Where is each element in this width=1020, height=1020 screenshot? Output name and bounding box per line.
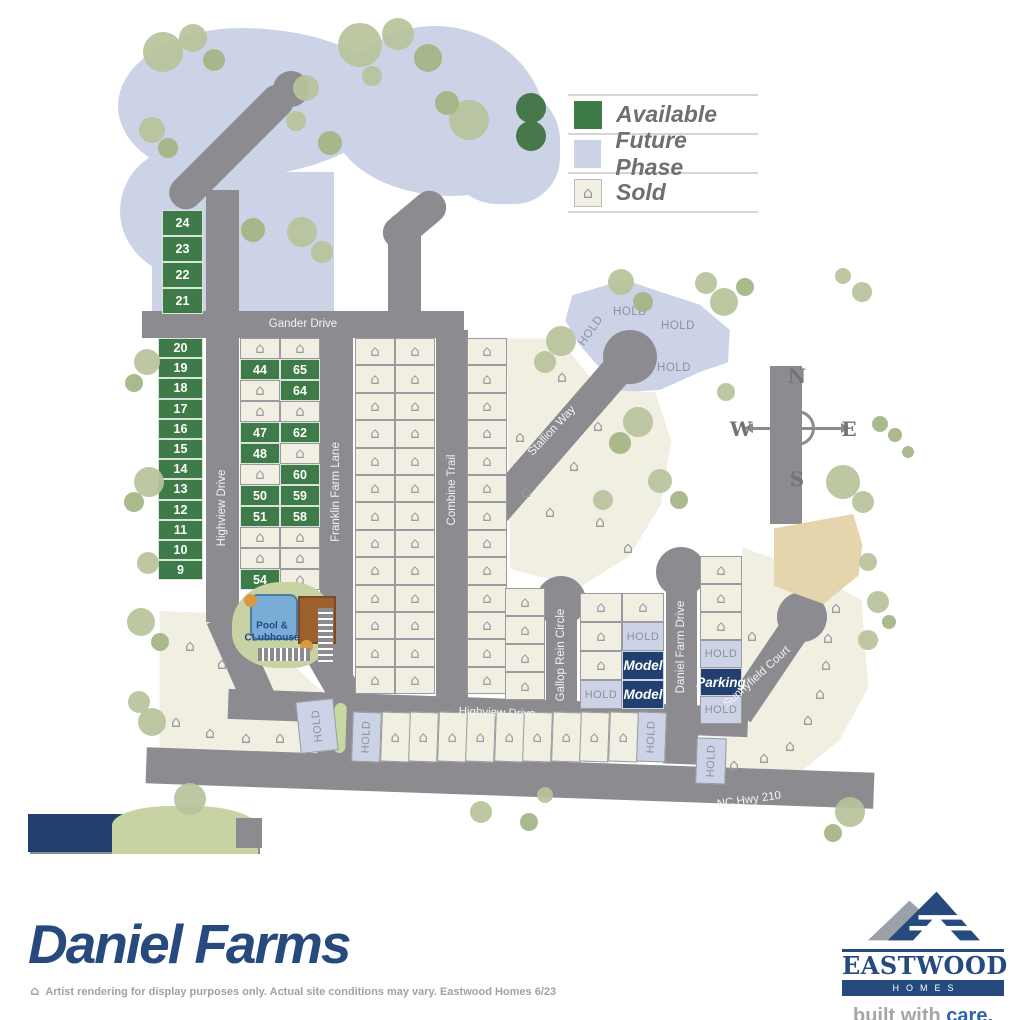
tree [134, 349, 160, 375]
house-icon: ⌂ [504, 729, 514, 744]
lot-available-17: 17 [158, 399, 203, 419]
house-icon: ⌂ [255, 383, 265, 398]
lot-available-64: 64 [280, 380, 320, 401]
hold-label: HOLD [360, 721, 373, 754]
lot-sold: ⌂ [355, 338, 395, 365]
tree [138, 708, 166, 736]
lot-sold: ⌂ [240, 464, 280, 485]
lot-number: 14 [174, 462, 188, 476]
lot-available-19: 19 [158, 358, 203, 378]
compass-south: S [790, 467, 804, 491]
lot-sold: ⌂ [608, 712, 638, 763]
lot-number: 11 [174, 523, 187, 537]
house-icon: ⌂ [255, 341, 265, 356]
tree [293, 75, 319, 101]
lot-sold: ⌂ [395, 393, 435, 420]
hold-label: HOLD [704, 745, 717, 778]
lot-number: 44 [253, 363, 267, 377]
tree [338, 23, 382, 67]
lot-sold: ⌂ [505, 588, 545, 616]
legend: Available Future Phase ⌂ Sold [568, 94, 758, 213]
tree [835, 268, 851, 284]
lot-available-48: 48 [240, 443, 280, 464]
lot-sold: ⌂ [280, 548, 320, 569]
house-icon: ⌂ [447, 729, 457, 744]
lot-sold: ⌂ [240, 338, 280, 359]
tree [158, 138, 178, 158]
lot-sold: ⌂ [395, 420, 435, 447]
house-icon: ⌂ [831, 600, 841, 616]
house-icon: ⌂ [785, 738, 795, 754]
tree [872, 416, 888, 432]
lot-number: 51 [253, 510, 267, 524]
tree [633, 292, 653, 312]
lot-number: 23 [176, 242, 190, 256]
lot-sold: ⌂ [700, 584, 742, 612]
lot-available-10: 10 [158, 540, 203, 560]
lot-number: 62 [293, 426, 307, 440]
logo-homes-bar: HOMES [842, 980, 1004, 996]
tree [151, 633, 169, 651]
tree [835, 797, 865, 827]
house-icon: ⌂ [623, 540, 633, 556]
lot-available-11: 11 [158, 520, 203, 540]
street-label: Gander Drive [269, 318, 337, 330]
house-icon: ⌂ [482, 454, 492, 469]
tree [179, 24, 207, 52]
house-icon: ⌂ [595, 514, 605, 530]
lot-available-16: 16 [158, 419, 203, 439]
house-icon: ⌂ [410, 399, 420, 414]
compass-east: E [841, 417, 856, 441]
lot-sold: ⌂ [395, 502, 435, 529]
house-icon: ⌂ [185, 638, 195, 654]
lot-hold: HOLD [695, 737, 727, 784]
lot-sold: ⌂ [280, 527, 320, 548]
lot-number: 50 [253, 489, 267, 503]
lot-available-12: 12 [158, 500, 203, 520]
lot-number: 59 [293, 489, 307, 503]
lot-sold: ⌂ [380, 712, 410, 763]
house-icon: ⌂ [716, 619, 726, 634]
lot-sold: ⌂ [408, 712, 438, 763]
house-icon: ⌂ [295, 551, 305, 566]
house-icon: ⌂ [482, 509, 492, 524]
lot-sold: ⌂ [240, 380, 280, 401]
tree [125, 374, 143, 392]
house-icon: ⌂ [716, 563, 726, 578]
tree [520, 813, 538, 831]
house-icon: ⌂ [410, 673, 420, 688]
house-icon: ⌂ [410, 591, 420, 606]
house-icon: ⌂ [618, 729, 628, 744]
lot-available-13: 13 [158, 479, 203, 499]
culdesac [656, 547, 706, 597]
map-open-space [774, 514, 866, 604]
lot-sold: ⌂ [280, 401, 320, 422]
lot-hold: HOLD [622, 622, 664, 651]
house-icon: ⌂ [370, 399, 380, 414]
tree [710, 288, 738, 316]
house-icon: ⌂ [410, 646, 420, 661]
house-icon: ⌂ [482, 591, 492, 606]
compass-west: W [730, 417, 752, 441]
house-icon: ⌂ [370, 536, 380, 551]
model-label: Model [624, 687, 663, 702]
lot-number: 16 [174, 422, 188, 436]
lot-sold: ⌂ [355, 530, 395, 557]
house-icon: ⌂ [410, 372, 420, 387]
lot-hold: HOLD [295, 698, 338, 754]
house-icon: ⌂ [557, 369, 567, 385]
hold-label: HOLD [309, 709, 324, 743]
house-icon: ⌂ [255, 551, 265, 566]
lot-model: Model [622, 651, 664, 680]
house-icon: ⌂ [815, 686, 825, 702]
house-icon: ⌂ [295, 404, 305, 419]
house-icon: ⌂ [255, 404, 265, 419]
house-icon: ⌂ [482, 646, 492, 661]
tree [127, 608, 155, 636]
lot-sold: ⌂ [395, 557, 435, 584]
lot-sold: ⌂ [505, 616, 545, 644]
lot-sold: ⌂ [395, 338, 435, 365]
lot-available-20: 20 [158, 338, 203, 358]
house-icon: ⌂ [275, 730, 285, 746]
lot-number: 65 [293, 363, 307, 377]
lot-sold: ⌂ [355, 393, 395, 420]
lot-number: 60 [293, 468, 307, 482]
lot-sold: ⌂ [355, 502, 395, 529]
house-icon: ⌂ [370, 673, 380, 688]
lot-number: 22 [176, 268, 190, 282]
lot-hold: HOLD [580, 680, 622, 709]
house-icon: ⌂ [370, 454, 380, 469]
tree [286, 111, 306, 131]
house-icon: ⌂ [410, 426, 420, 441]
lot-sold: ⌂ [395, 585, 435, 612]
lot-sold: ⌂ [355, 639, 395, 666]
lot-available-50: 50 [240, 485, 280, 506]
house-icon: ⌂ [370, 481, 380, 496]
lot-sold: ⌂ [580, 651, 622, 680]
lot-available-24: 24 [162, 210, 203, 236]
hold-label: HOLD [661, 320, 695, 332]
house-icon: ⌂ [241, 730, 251, 746]
tree [593, 490, 613, 510]
house-icon: ⌂ [482, 372, 492, 387]
house-icon: ⌂ [596, 600, 606, 615]
lot-sold: ⌂ [505, 644, 545, 672]
house-icon: ⌂ [596, 629, 606, 644]
road [206, 190, 239, 622]
lot-hold: HOLD [700, 640, 742, 668]
tree [534, 351, 556, 373]
tree [318, 131, 342, 155]
hold-label: HOLD [585, 689, 618, 701]
house-icon: ⌂ [295, 530, 305, 545]
lot-number: 64 [293, 384, 307, 398]
lot-sold: ⌂ [240, 527, 280, 548]
house-icon: ⌂ [589, 729, 599, 744]
lot-available-9: 9 [158, 560, 203, 580]
tagline-built-with: built with [853, 1005, 946, 1020]
lot-model: Model [622, 680, 664, 709]
compass-circle [779, 410, 815, 446]
legend-item-future-phase: Future Phase [568, 133, 758, 172]
tree [858, 630, 878, 650]
street-label: Combine Trail [446, 455, 458, 526]
house-icon: ⌂ [482, 673, 492, 688]
lot-sold: ⌂ [395, 448, 435, 475]
house-icon: ⌂ [803, 712, 813, 728]
lot-sold: ⌂ [467, 612, 507, 639]
house-icon: ⌂ [593, 418, 603, 434]
site-map-page: Pool & CLubhouse 24232221201918171615141… [0, 0, 1020, 1020]
lot-available-44: 44 [240, 359, 280, 380]
house-icon: ⌂ [482, 618, 492, 633]
future-phase-swatch [574, 140, 601, 168]
tree [435, 91, 459, 115]
lot-available-14: 14 [158, 459, 203, 479]
house-icon: ⌂ [520, 679, 530, 694]
tree [537, 787, 553, 803]
lot-number: 12 [174, 503, 188, 517]
lot-sold: ⌂ [551, 712, 581, 763]
lot-sold: ⌂ [355, 612, 395, 639]
hold-label: HOLD [705, 648, 738, 660]
lot-available-22: 22 [162, 262, 203, 288]
house-icon: ⌂ [295, 341, 305, 356]
lot-sold: ⌂ [467, 365, 507, 392]
map-road-stub [236, 818, 262, 848]
lot-number: 47 [253, 426, 267, 440]
lot-sold: ⌂ [240, 548, 280, 569]
lot-available-65: 65 [280, 359, 320, 380]
house-icon: ⌂ [545, 504, 555, 520]
house-icon: ⌂ [410, 563, 420, 578]
house-icon: ⌂ [370, 509, 380, 524]
lot-hold: HOLD [351, 712, 381, 763]
house-icon: ⌂ [823, 630, 833, 646]
house-icon: ⌂ [370, 426, 380, 441]
lot-number: 9 [177, 563, 184, 577]
lot-available-58: 58 [280, 506, 320, 527]
street-label: Gallop Rein Circle [555, 609, 567, 702]
hold-label: HOLD [657, 362, 691, 374]
tree [824, 824, 842, 842]
hold-label: HOLD [627, 631, 660, 643]
tree [362, 66, 382, 86]
house-icon: ⌂ [482, 344, 492, 359]
lot-sold: ⌂ [580, 622, 622, 651]
tree [241, 218, 265, 242]
community-site-map: Pool & CLubhouse 24232221201918171615141… [0, 0, 1020, 1020]
tree [137, 552, 159, 574]
house-icon: ⌂ [729, 757, 739, 773]
lot-sold: ⌂ [467, 393, 507, 420]
house-icon: ⌂ [370, 563, 380, 578]
lot-available-47: 47 [240, 422, 280, 443]
tree [516, 121, 546, 151]
house-icon: ⌂ [482, 536, 492, 551]
model-label: Model [624, 658, 663, 673]
tree [203, 49, 225, 71]
tree [174, 783, 206, 815]
lot-sold: ⌂ [355, 420, 395, 447]
lot-sold: ⌂ [395, 667, 435, 694]
lot-number: 58 [293, 510, 307, 524]
house-icon: ⌂ [410, 344, 420, 359]
parking-spaces [318, 608, 333, 664]
house-icon: ⌂ [171, 714, 181, 730]
culdesac [603, 330, 657, 384]
lot-available-23: 23 [162, 236, 203, 262]
house-icon: ⌂ [596, 658, 606, 673]
lot-sold: ⌂ [465, 712, 495, 763]
house-icon: ⌂ [205, 725, 215, 741]
lot-available-62: 62 [280, 422, 320, 443]
lot-number: 18 [174, 381, 188, 395]
house-icon: ⌂ [520, 623, 530, 638]
house-icon: ⌂ [569, 458, 579, 474]
tree [623, 407, 653, 437]
pool-label-line2: CLubhouse [245, 633, 300, 644]
house-icon: ⌂ [418, 729, 428, 744]
house-icon: ⌂ [716, 591, 726, 606]
lot-available-21: 21 [162, 288, 203, 314]
tree [852, 491, 874, 513]
lot-sold: ⌂ [280, 338, 320, 359]
parking-spaces [258, 648, 310, 661]
lot-number: 17 [174, 402, 188, 416]
compass-north: N [788, 364, 806, 388]
house-icon: ⌂ [370, 618, 380, 633]
available-swatch [574, 101, 602, 129]
house-icon: ⌂ [520, 595, 530, 610]
legend-label: Sold [616, 179, 666, 206]
eastwood-homes-logo: EASTWOOD HOMES built with care. [842, 888, 1004, 1020]
tree [609, 432, 631, 454]
lot-sold: ⌂ [467, 557, 507, 584]
tree [882, 615, 896, 629]
tree [516, 93, 546, 123]
tree [670, 491, 688, 509]
tree [888, 428, 902, 442]
disclaimer-text: Artist rendering for display purposes on… [45, 986, 556, 998]
lot-sold: ⌂ [395, 639, 435, 666]
house-icon: ⌂ [521, 484, 531, 500]
tree [143, 32, 183, 72]
lot-sold: ⌂ [280, 443, 320, 464]
tree [414, 44, 442, 72]
lot-sold: ⌂ [467, 639, 507, 666]
community-title: Daniel Farms [28, 912, 349, 976]
house-icon: ⌂ [475, 729, 485, 744]
tagline-care: care. [946, 1005, 993, 1020]
house-icon: ⌂ [370, 591, 380, 606]
tree [470, 801, 492, 823]
lot-number: 13 [174, 482, 188, 496]
tree [902, 446, 914, 458]
street-label: Daniel Farm Drive [675, 601, 687, 694]
tree [717, 383, 735, 401]
lot-available-59: 59 [280, 485, 320, 506]
lot-number: 15 [174, 442, 188, 456]
lot-sold: ⌂ [395, 530, 435, 557]
lot-sold: ⌂ [395, 612, 435, 639]
road [663, 711, 699, 764]
tree [859, 553, 877, 571]
lot-available-60: 60 [280, 464, 320, 485]
house-icon: ⌂ [370, 646, 380, 661]
house-icon: ⌂ [370, 372, 380, 387]
lot-available-51: 51 [240, 506, 280, 527]
logo-wordmark: EASTWOOD [842, 949, 1004, 980]
lot-sold: ⌂ [467, 585, 507, 612]
lot-sold: ⌂ [355, 667, 395, 694]
house-icon: ⌂ [255, 530, 265, 545]
lot-sold: ⌂ [355, 448, 395, 475]
lot-sold: ⌂ [355, 557, 395, 584]
house-icon: ⌂ [30, 984, 39, 999]
disclaimer: ⌂ Artist rendering for display purposes … [30, 984, 556, 999]
street-label: Franklin Farm Lane [330, 442, 342, 542]
lot-sold: ⌂ [355, 475, 395, 502]
tree [287, 217, 317, 247]
house-icon: ⌂ [561, 729, 571, 744]
lot-sold: ⌂ [437, 712, 467, 763]
house-icon: ⌂ [532, 729, 542, 744]
lot-sold: ⌂ [700, 612, 742, 640]
house-icon: ⌂ [370, 344, 380, 359]
lot-sold: ⌂ [467, 448, 507, 475]
house-icon: ⌂ [482, 426, 492, 441]
house-icon: ⌂ [410, 481, 420, 496]
house-icon: ⌂ [410, 454, 420, 469]
lot-sold: ⌂ [467, 338, 507, 365]
house-icon: ⌂ [410, 618, 420, 633]
pool-label-line1: Pool & [256, 621, 288, 632]
house-icon: ⌂ [638, 600, 648, 615]
lot-number: 19 [174, 361, 188, 375]
lot-number: 10 [174, 543, 188, 557]
lot-number: 20 [174, 341, 188, 355]
house-icon: ⌂ [515, 429, 525, 445]
house-icon: ⌂ [520, 651, 530, 666]
tree [852, 282, 872, 302]
street-label: Highview Drive [216, 470, 228, 547]
tree [311, 241, 333, 263]
hold-label: HOLD [645, 721, 658, 754]
legend-label: Available [616, 101, 717, 128]
lot-sold: ⌂ [467, 530, 507, 557]
lot-number: 24 [176, 216, 190, 230]
eastwood-roof-logo [864, 888, 982, 944]
tree [124, 492, 144, 512]
tree [867, 591, 889, 613]
house-icon: ⌂ [482, 399, 492, 414]
house-icon: ⌂ [747, 628, 757, 644]
house-icon: ⌂ [821, 657, 831, 673]
lot-sold: ⌂ [355, 585, 395, 612]
lot-sold: ⌂ [355, 365, 395, 392]
lot-sold: ⌂ [395, 475, 435, 502]
tree [608, 269, 634, 295]
house-icon: ⌂ [390, 729, 400, 744]
lot-sold: ⌂ [622, 593, 664, 622]
tree [382, 18, 414, 50]
